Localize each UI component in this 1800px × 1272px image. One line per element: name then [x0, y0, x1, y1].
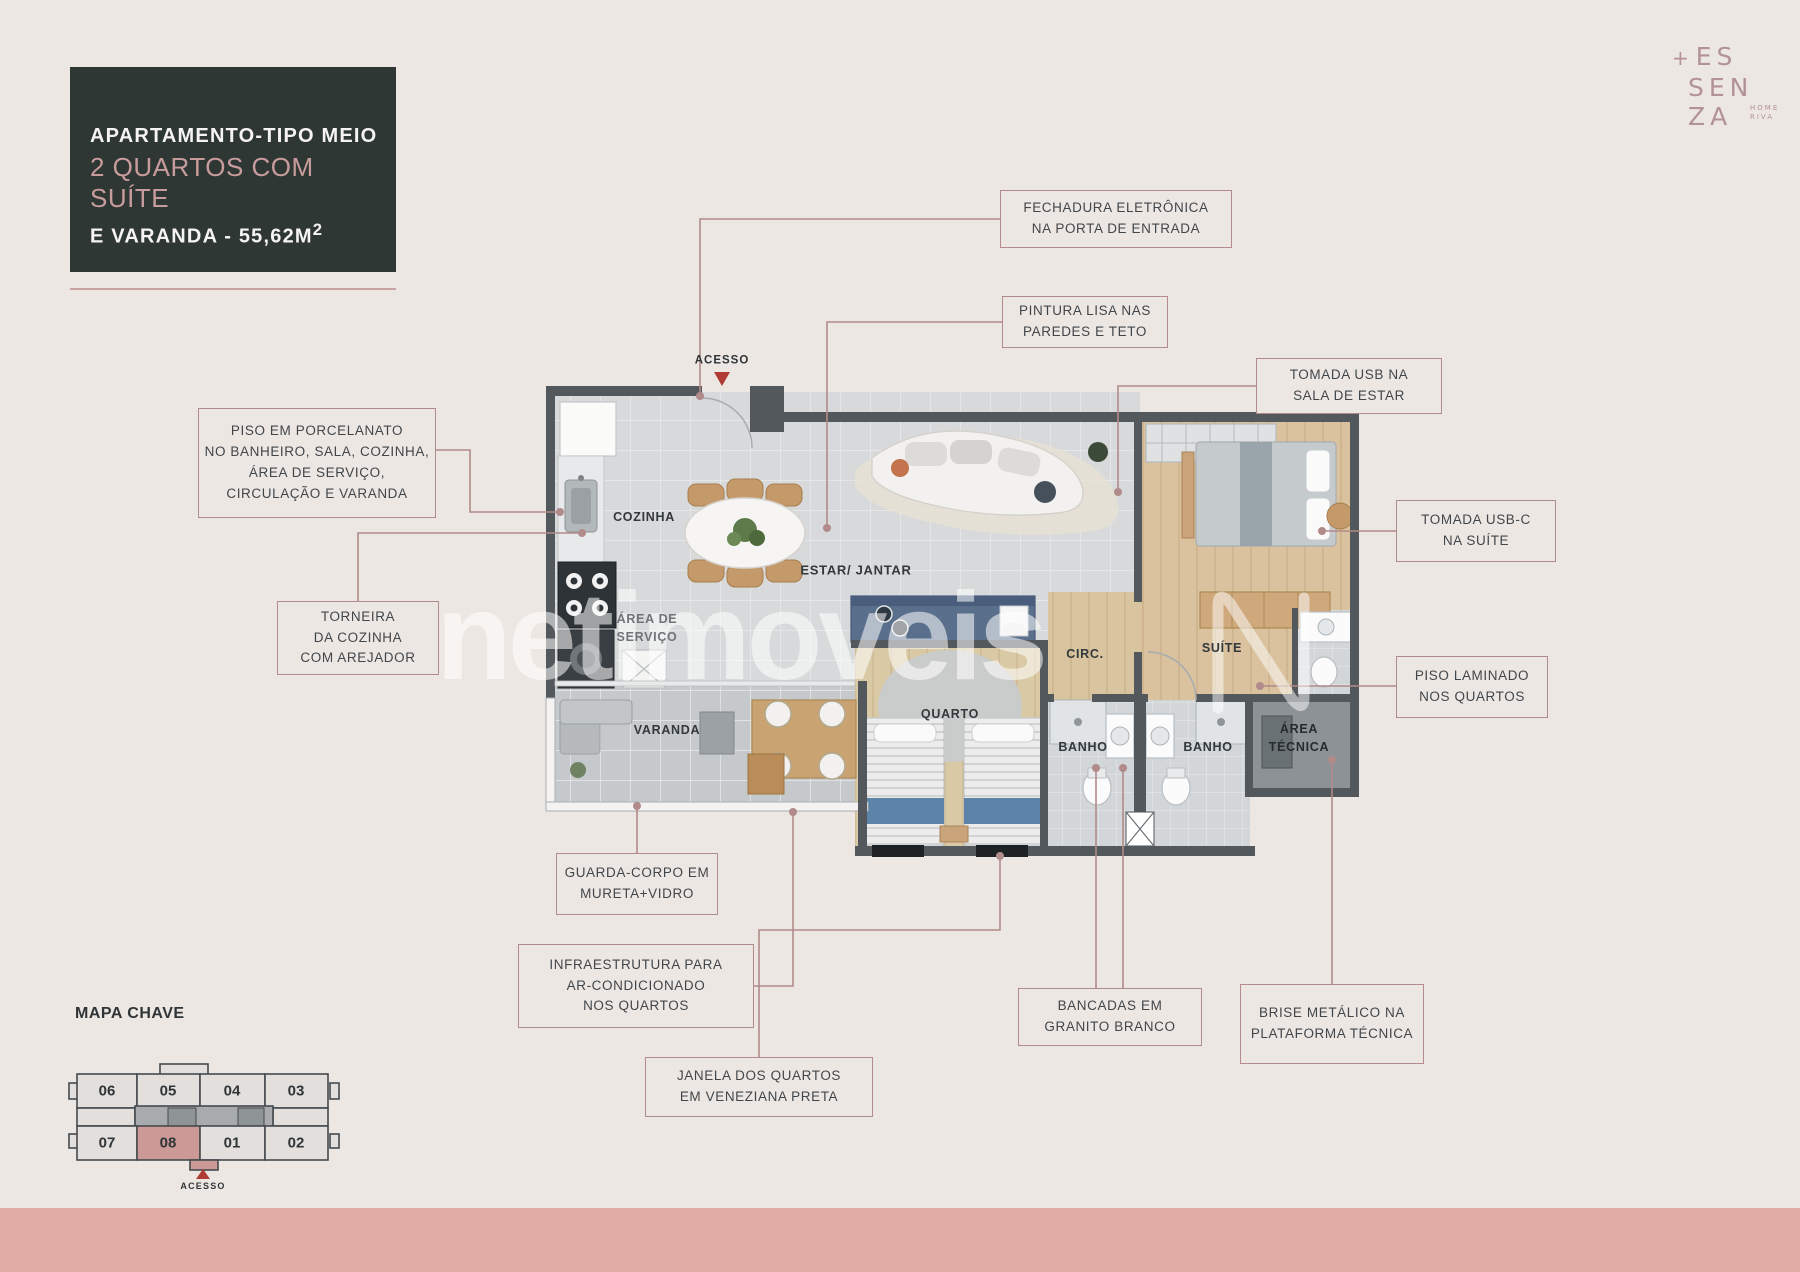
room-label-acesso: ACESSO [695, 353, 750, 370]
callout-porcelanato: PISO EM PORCELANATO NO BANHEIRO, SALA, C… [198, 408, 436, 518]
area-superscript: 2 [313, 220, 323, 239]
room-label-circ: CIRC. [1066, 645, 1104, 663]
room-label-banho-2: BANHO [1183, 738, 1232, 756]
keymap-unit-03: 03 [288, 1083, 305, 1100]
room-label-cozinha: COZINHA [613, 508, 675, 526]
apartment-type-title: APARTAMENTO-TIPO MEIO [90, 125, 396, 148]
logo-subtext: HOME RIVA [1750, 104, 1779, 122]
callout-torneira: TORNEIRA DA COZINHA COM AREJADOR [277, 601, 439, 675]
callout-guarda-corpo: GUARDA-CORPO EM MURETA+VIDRO [556, 853, 718, 915]
entrance-arrow-icon [714, 372, 730, 386]
room-label-banho-1: BANHO [1058, 738, 1107, 756]
callout-bancadas: BANCADAS EM GRANITO BRANCO [1018, 988, 1202, 1046]
keymap-unit-05: 05 [160, 1083, 177, 1100]
callout-pintura: PINTURA LISA NAS PAREDES E TETO [1002, 296, 1168, 348]
callout-usbc-suite: TOMADA USB-C NA SUÍTE [1396, 500, 1556, 562]
essenza-logo: +ES SEN ZA HOME RIVA [1672, 42, 1782, 131]
keymap-unit-04: 04 [224, 1083, 241, 1100]
callout-fechadura: FECHADURA ELETRÔNICA NA PORTA DE ENTRADA [1000, 190, 1232, 248]
keymap-graphic [69, 1064, 339, 1179]
keymap-unit-01: 01 [224, 1135, 241, 1152]
logo-plus-icon: + [1672, 46, 1694, 70]
keymap-acesso-label: ACESSO [180, 1181, 225, 1191]
apartment-area: E VARANDA - 55,62M2 [90, 220, 396, 249]
callout-usb-sala: TOMADA USB NA SALA DE ESTAR [1256, 358, 1442, 414]
title-block: APARTAMENTO-TIPO MEIO 2 QUARTOS COM SUÍT… [70, 67, 396, 272]
room-label-quarto: QUARTO [921, 705, 979, 723]
page: netimoveis APARTAMENTO-TIPO MEIO 2 QUART… [0, 0, 1800, 1272]
media-console [851, 596, 1035, 642]
room-label-varanda: VARANDA [634, 721, 700, 739]
keymap-unit-02: 02 [288, 1135, 305, 1152]
keymap-unit-06: 06 [99, 1083, 116, 1100]
keymap-unit-08-highlighted: 08 [160, 1135, 177, 1152]
keymap-unit-07: 07 [99, 1135, 116, 1152]
dining-table [685, 479, 805, 587]
room-label-area-tecnica: ÁREA TÉCNICA [1269, 720, 1329, 756]
callout-laminado: PISO LAMINADO NOS QUARTOS [1396, 656, 1548, 718]
keymap-title: MAPA CHAVE [75, 1005, 185, 1023]
title-underline [70, 288, 396, 290]
room-label-area-servico: ÁREA DE SERVIÇO [617, 610, 678, 646]
apartment-subtitle: 2 QUARTOS COM SUÍTE [90, 152, 396, 214]
callout-janela: JANELA DOS QUARTOS EM VENEZIANA PRETA [645, 1057, 873, 1117]
callout-infraestrutura: INFRAESTRUTURA PARA AR-CONDICIONADO NOS … [518, 944, 754, 1028]
callout-brise: BRISE METÁLICO NA PLATAFORMA TÉCNICA [1240, 984, 1424, 1064]
room-label-suite: SUÍTE [1202, 639, 1242, 657]
room-label-estar: ESTAR/ JANTAR [800, 562, 911, 581]
footer-accent-band [0, 1208, 1800, 1272]
